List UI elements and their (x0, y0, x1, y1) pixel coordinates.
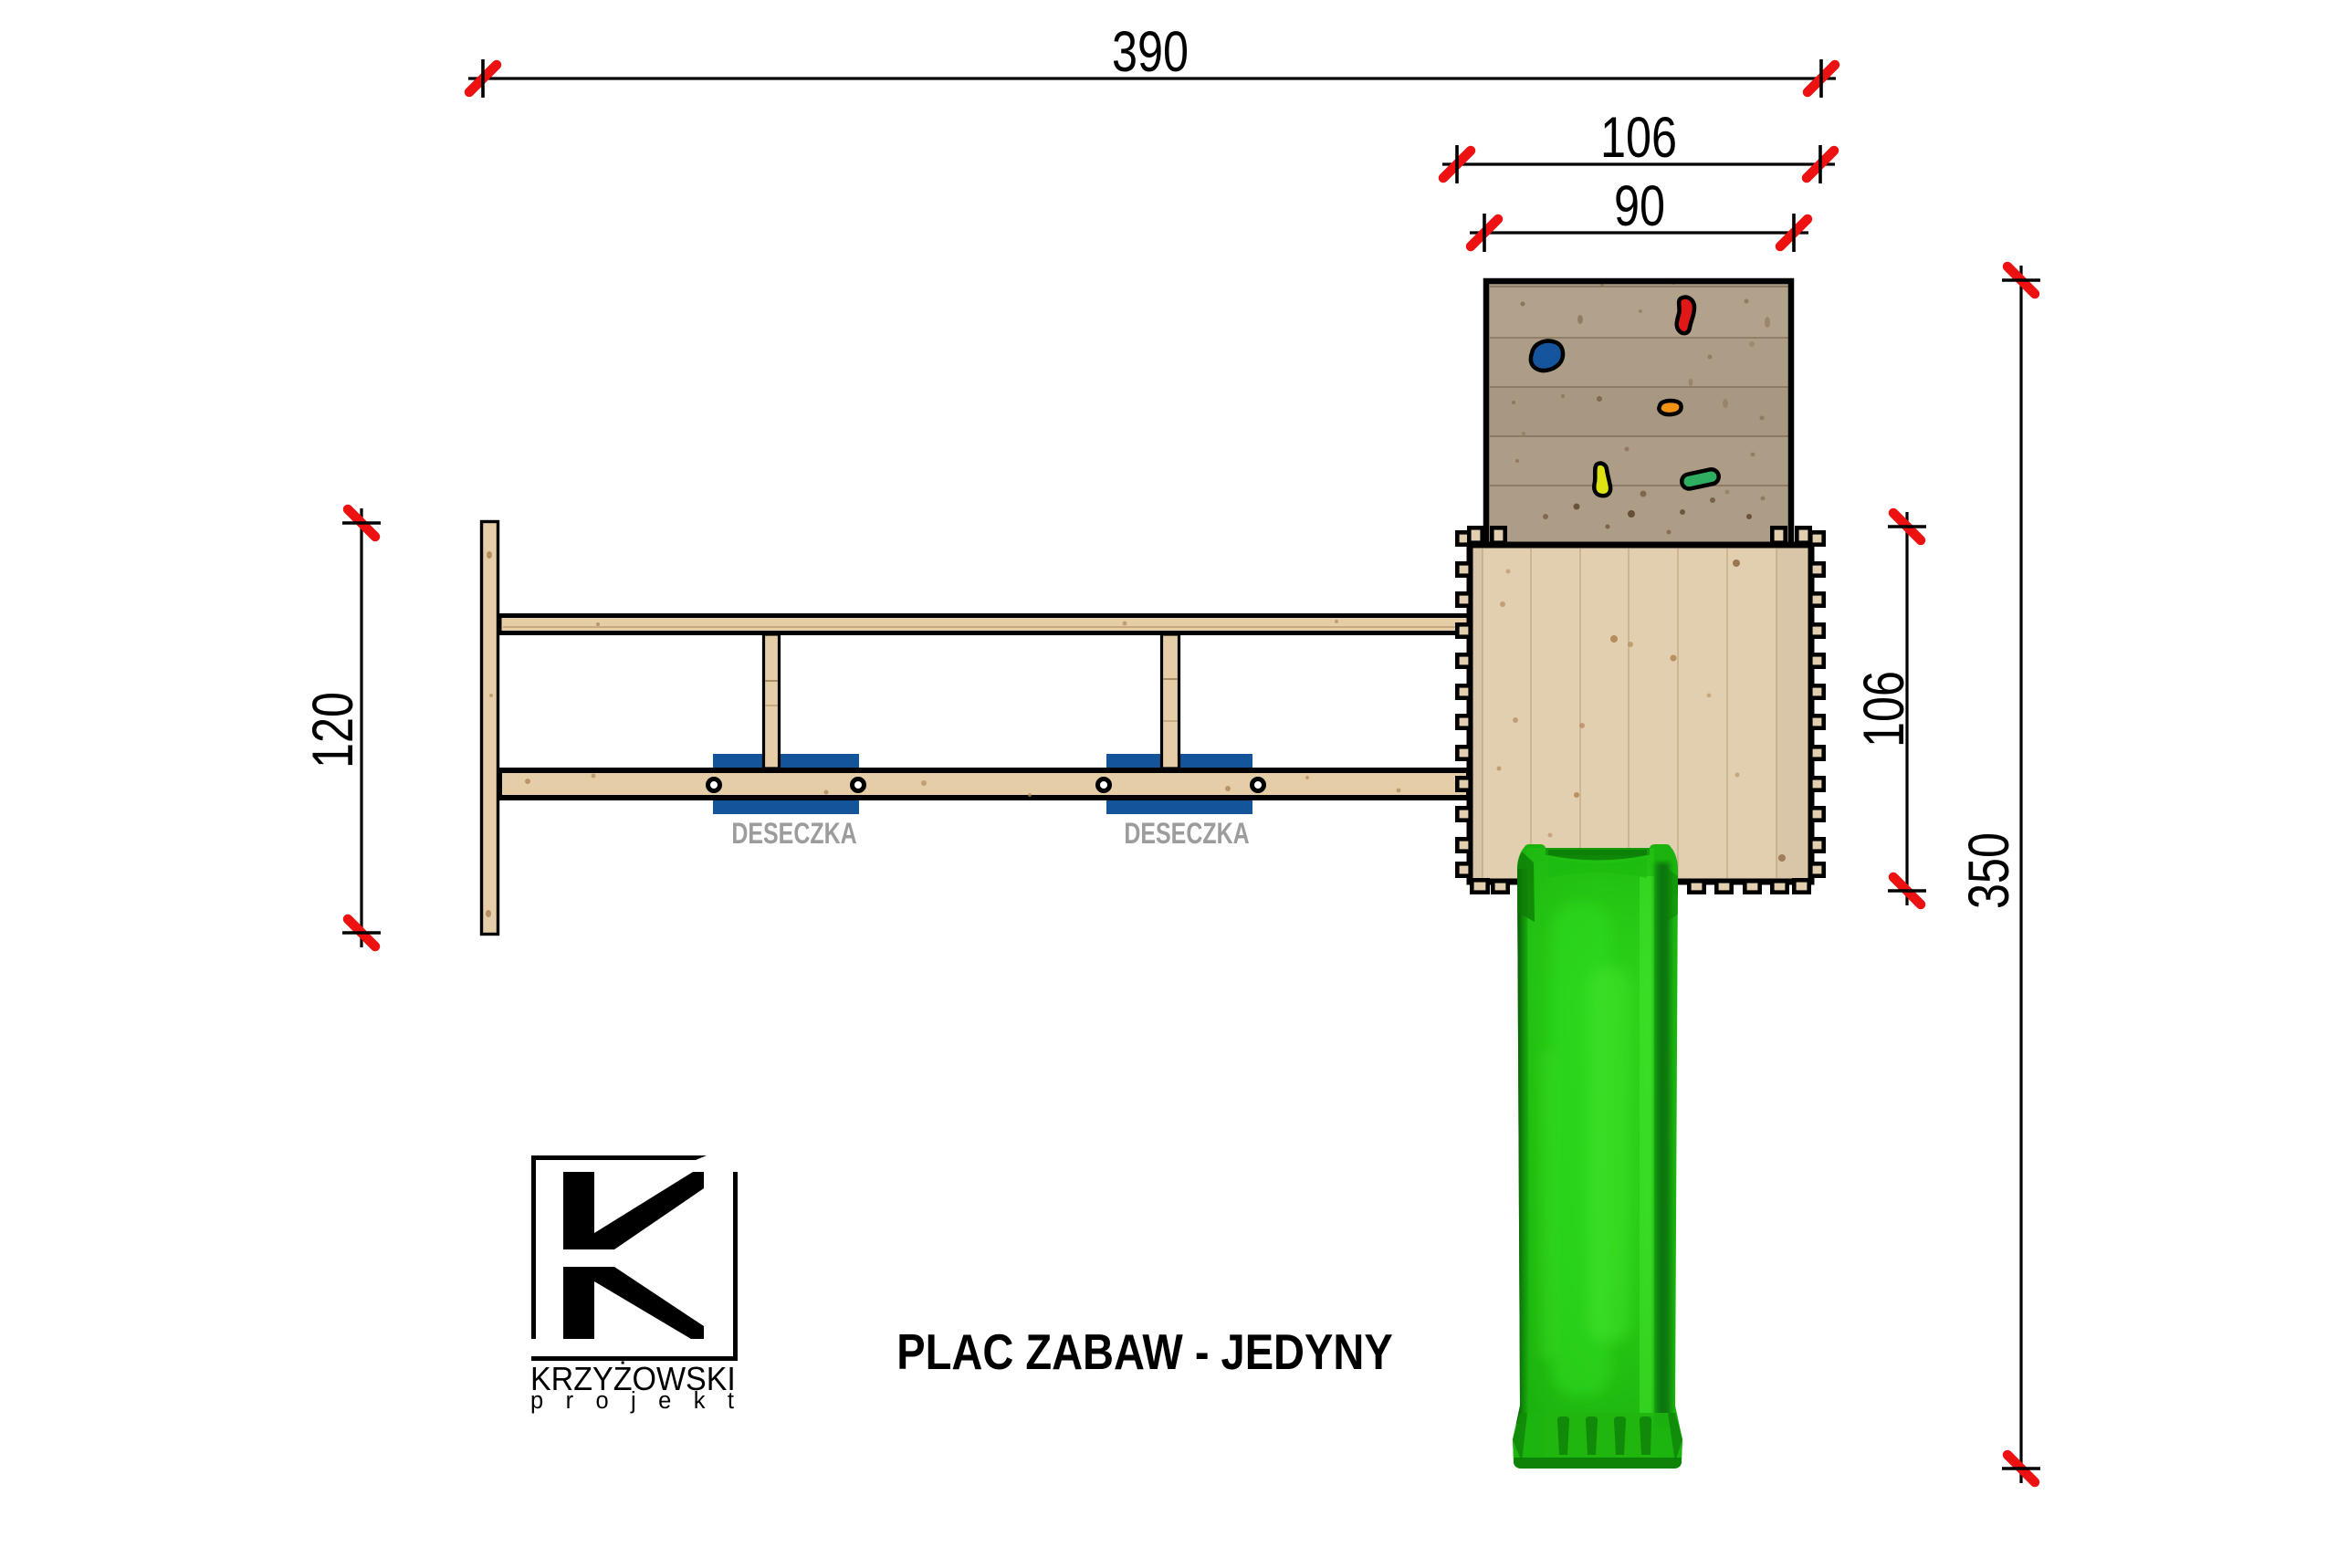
svg-text:106: 106 (1852, 671, 1917, 747)
svg-text:DESECZKA: DESECZKA (1124, 818, 1249, 851)
svg-text:projekt: projekt (530, 1388, 756, 1414)
svg-text:390: 390 (1112, 20, 1189, 85)
svg-text:90: 90 (1614, 174, 1665, 239)
svg-text:106: 106 (1600, 106, 1677, 171)
svg-text:350: 350 (1957, 832, 2022, 909)
svg-text:120: 120 (301, 692, 366, 768)
svg-text:PLAC ZABAW - JEDYNY: PLAC ZABAW - JEDYNY (896, 1324, 1392, 1380)
svg-text:DESECZKA: DESECZKA (731, 818, 856, 851)
